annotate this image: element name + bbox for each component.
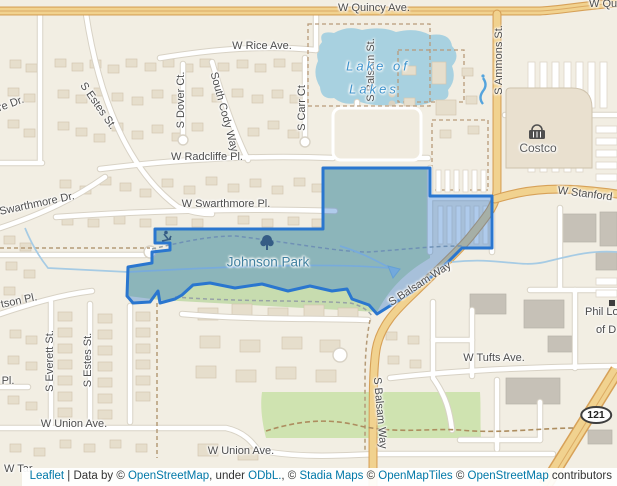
stadia-maps-link[interactable]: Stadia Maps bbox=[299, 470, 363, 482]
leaflet-link[interactable]: Leaflet bbox=[30, 470, 65, 482]
osm-contributors-link[interactable]: OpenStreetMap bbox=[468, 470, 549, 482]
costco-building bbox=[506, 88, 592, 168]
attribution-text: , under bbox=[209, 470, 248, 482]
route-121-shield: 121 bbox=[580, 406, 612, 424]
osm-link[interactable]: OpenStreetMap bbox=[128, 470, 209, 482]
map-tiles bbox=[0, 0, 617, 486]
attribution-text: © bbox=[453, 470, 468, 482]
sports-field bbox=[333, 108, 421, 160]
map-canvas[interactable]: W Quincy Ave. W Quincy Ave. W Rice Ave. … bbox=[0, 0, 617, 486]
openmaptiles-link[interactable]: OpenMapTiles bbox=[378, 470, 452, 482]
poi-icon bbox=[609, 300, 615, 306]
attribution-text: | Data by © bbox=[64, 470, 128, 482]
attribution-text: © bbox=[363, 470, 378, 482]
attribution-bar: Leaflet | Data by © OpenStreetMap, under… bbox=[22, 468, 617, 486]
attribution-text: , © bbox=[281, 470, 299, 482]
odbl-link[interactable]: ODbL. bbox=[248, 470, 281, 482]
attribution-text: contributors bbox=[549, 470, 612, 482]
